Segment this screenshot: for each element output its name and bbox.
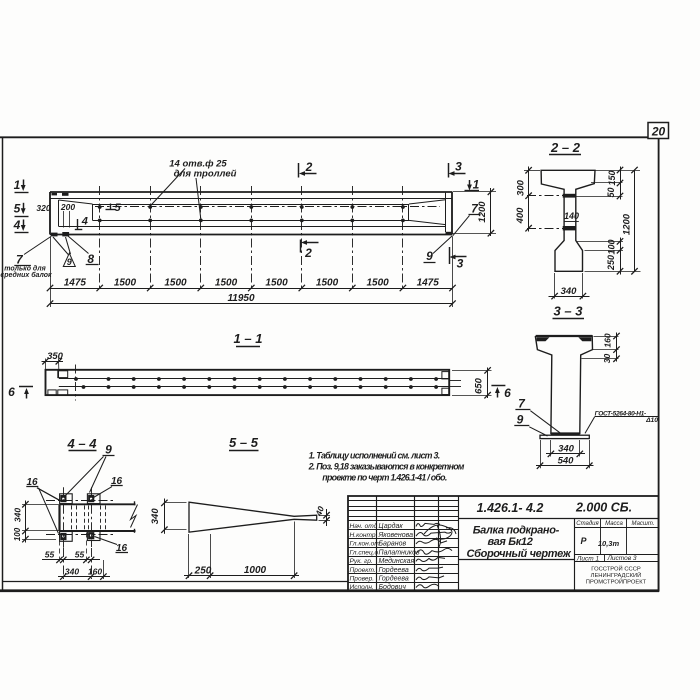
svg-text:540: 540 [558, 455, 575, 466]
svg-text:20: 20 [651, 125, 666, 139]
svg-text:Цардак: Цардак [379, 522, 404, 530]
svg-text:340: 340 [65, 566, 79, 576]
svg-text:1 – 1: 1 – 1 [234, 331, 263, 346]
svg-text:30: 30 [602, 354, 612, 364]
svg-text:1200: 1200 [477, 201, 488, 223]
svg-text:1: 1 [473, 178, 480, 192]
svg-text:ГОССТРОЙ СССР: ГОССТРОЙ СССР [591, 565, 641, 573]
svg-text:200: 200 [60, 202, 75, 212]
svg-text:50: 50 [606, 187, 616, 197]
svg-text:6: 6 [8, 385, 15, 399]
svg-text:Бодович: Бодович [379, 583, 407, 591]
svg-text:Листов 3: Листов 3 [606, 555, 636, 562]
svg-text:350: 350 [47, 351, 64, 362]
svg-text:1500: 1500 [265, 278, 288, 289]
svg-text:Δ10: Δ10 [645, 417, 658, 424]
svg-text:150: 150 [607, 170, 617, 185]
svg-text:2. Поз. 9,18 заказываются в ко: 2. Поз. 9,18 заказываются в конкретном [308, 462, 465, 472]
svg-text:Гл.спец.о: Гл.спец.о [350, 549, 379, 556]
svg-text:55: 55 [75, 550, 85, 560]
svg-text:5 – 5: 5 – 5 [229, 435, 259, 450]
svg-text:2: 2 [305, 160, 313, 174]
svg-text:Гл.кон.от: Гл.кон.от [350, 541, 381, 548]
svg-text:2: 2 [304, 246, 312, 260]
svg-text:Масса: Масса [605, 521, 623, 527]
svg-text:4: 4 [81, 216, 88, 228]
svg-text:Баранов: Баранов [379, 541, 407, 548]
svg-text:3 – 3: 3 – 3 [554, 304, 584, 319]
svg-text:вая Бк12: вая Бк12 [488, 536, 533, 548]
svg-text:160: 160 [88, 567, 102, 577]
svg-text:4 – 4: 4 – 4 [67, 436, 98, 451]
svg-text:300: 300 [516, 179, 527, 196]
svg-text:9: 9 [105, 443, 112, 457]
svg-text:Р: Р [580, 536, 587, 546]
svg-text:55: 55 [45, 550, 55, 560]
svg-text:340: 340 [150, 508, 161, 525]
svg-text:1475: 1475 [417, 278, 440, 289]
svg-text:140: 140 [564, 211, 579, 221]
svg-text:650: 650 [474, 377, 485, 394]
svg-text:1500: 1500 [164, 278, 187, 289]
svg-text:5: 5 [114, 202, 121, 214]
svg-text:100: 100 [607, 239, 617, 254]
svg-text:1000: 1000 [244, 565, 267, 576]
svg-text:1475: 1475 [64, 278, 87, 289]
svg-text:1200: 1200 [621, 213, 632, 235]
svg-text:Н.контр.: Н.контр. [350, 532, 378, 539]
svg-text:1: 1 [14, 178, 21, 192]
svg-text:Гордеева: Гордеева [379, 566, 409, 574]
svg-text:250: 250 [606, 255, 616, 271]
svg-text:Провер.: Провер. [350, 576, 375, 583]
svg-text:2 – 2: 2 – 2 [550, 140, 581, 155]
svg-text:340: 340 [558, 444, 575, 455]
svg-text:4: 4 [13, 218, 21, 232]
svg-text:Исполн.: Исполн. [350, 584, 375, 591]
svg-text:Масшт.: Масшт. [632, 521, 655, 527]
svg-text:1. Таблицу исполнений см. лис: 1. Таблицу исполнений см. лист 3. [309, 450, 440, 460]
svg-text:1500: 1500 [114, 278, 137, 289]
svg-text:ЛЕНИНГРАДСКИЙ: ЛЕНИНГРАДСКИЙ [591, 571, 642, 579]
svg-text:320: 320 [36, 203, 50, 213]
svg-text:160: 160 [603, 333, 613, 347]
svg-text:6: 6 [504, 386, 511, 400]
svg-text:Балка подкрано-: Балка подкрано- [473, 525, 560, 537]
svg-text:Проект.: Проект. [350, 567, 376, 574]
svg-text:2.000 СБ.: 2.000 СБ. [575, 501, 632, 515]
svg-text:100: 100 [13, 527, 22, 541]
svg-text:Рук. гр.: Рук. гр. [350, 558, 373, 565]
svg-text:8: 8 [87, 252, 94, 266]
svg-text:Сборочный чертеж: Сборочный чертеж [467, 548, 572, 560]
svg-text:1.426.1- 4.2: 1.426.1- 4.2 [477, 501, 544, 515]
svg-text:3: 3 [455, 160, 462, 174]
svg-text:Яковенова: Яковенова [378, 532, 414, 539]
svg-text:340: 340 [13, 508, 23, 522]
svg-text:Стадия: Стадия [576, 521, 599, 527]
svg-text:средних балок: средних балок [0, 271, 52, 279]
svg-text:1500: 1500 [316, 278, 339, 289]
svg-text:250: 250 [194, 565, 212, 576]
svg-text:5: 5 [14, 201, 21, 215]
svg-text:11950: 11950 [227, 293, 255, 304]
svg-text:9: 9 [67, 257, 72, 267]
svg-text:ПРОМСТРОЙПРОЕКТ: ПРОМСТРОЙПРОЕКТ [586, 577, 647, 585]
svg-text:Нач. отд: Нач. отд [350, 522, 378, 530]
svg-text:9: 9 [517, 413, 524, 427]
svg-text:Гордеева: Гордеева [379, 575, 409, 583]
svg-text:Палатников: Палатников [379, 549, 421, 556]
svg-text:проекте по черт 1.426.1-41 / о: проекте по черт 1.426.1-41 / обо. [322, 473, 447, 483]
svg-text:1500: 1500 [215, 278, 238, 289]
svg-text:9: 9 [426, 249, 433, 263]
svg-text:10,3т: 10,3т [598, 539, 620, 548]
svg-text:400: 400 [515, 207, 526, 225]
svg-text:3: 3 [457, 257, 464, 271]
svg-text:1500: 1500 [366, 278, 389, 289]
svg-text:Мединская: Мединская [379, 557, 415, 565]
svg-text:340: 340 [561, 286, 578, 297]
